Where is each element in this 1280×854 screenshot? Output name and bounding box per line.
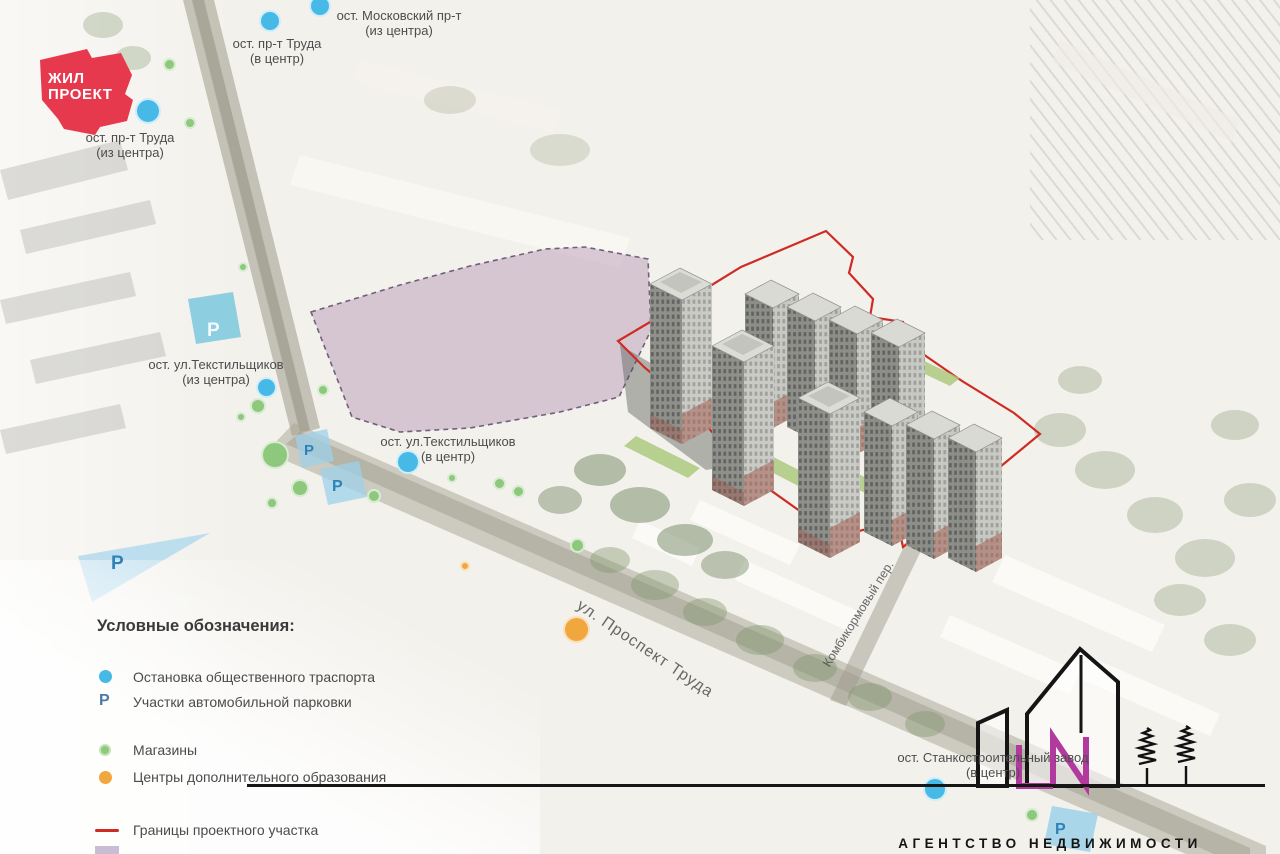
legend-parking-swatch: Р [99,692,110,710]
industrial-slabs-left [0,140,166,454]
stop-name: ост. ул.Текстильщиков [148,357,283,372]
developer-logo-line1: ЖИЛ [48,70,85,87]
stop-direction: (из центра) [96,145,164,160]
legend-item-parking: Участки автомобильной парковки [133,694,352,710]
legend-item-education: Центры дополнительного образования [133,769,386,785]
shop-marker [266,497,278,509]
stop-label: ост. пр-т Труда (в центр) [187,36,367,66]
agency-name: АГЕНТСТВО НЕДВИЖИМОСТИ [890,836,1210,851]
parking-label: Р [304,442,314,459]
legend-demolition-swatch [95,846,119,854]
stop-direction: (в центр) [421,449,475,464]
transit-stop-marker [259,10,281,32]
shop-marker [317,384,329,396]
legend-boundary-swatch [95,829,119,832]
shop-marker [238,262,248,272]
legend-title: Условные обозначения: [97,617,295,636]
parking-label: Р [207,320,220,342]
stop-label: ост. ул.Текстильщиков (из центра) [126,357,306,387]
shop-marker [261,441,289,469]
legend-transit-swatch [99,670,112,683]
stop-direction: (в центр) [250,51,304,66]
shop-marker [291,479,309,497]
parking-label: Р [111,553,124,575]
parking-label: Р [332,478,343,496]
stop-name: ост. пр-т Труда [233,36,322,51]
stop-label: ост. Московский пр-т (из центра) [309,8,489,38]
shop-marker [447,473,457,483]
legend-item-transit: Остановка общественного траспорта [133,669,375,685]
stop-direction: (в центр) [966,765,1020,780]
stop-direction: (из центра) [182,372,250,387]
stop-label: ост. Станкостроительный завод (в центр) [873,750,1113,780]
shop-marker [493,477,506,490]
shop-marker [236,412,246,422]
shop-marker [367,489,381,503]
shop-marker [570,538,585,553]
legend-item-boundary: Границы проектного участка [133,822,318,838]
developer-logo: ЖИЛ ПРОЕКТ [48,71,113,103]
agency-ground-line [247,784,1265,787]
stop-name: ост. ул.Текстильщиков [380,434,515,449]
masterplan-map: Р Р Р Р Р ост. Московский пр-т (из центр… [0,0,1280,854]
shop-marker [512,485,525,498]
shop-marker [250,398,266,414]
transit-stop-marker [135,98,161,124]
stop-name: ост. Станкостроительный завод [897,750,1088,765]
transit-stop-marker [923,777,947,801]
legend-item-shops: Магазины [133,742,197,758]
developer-logo-line2: ПРОЕКТ [48,86,113,103]
shop-marker [1025,808,1039,822]
shop-marker [163,58,176,71]
tree-icon [1138,728,1156,786]
residential-towers [650,268,1002,572]
stop-name: ост. пр-т Труда [86,130,175,145]
demolition-zone [311,247,651,432]
stop-label: ост. ул.Текстильщиков (в центр) [358,434,538,464]
tree-icon [1177,726,1195,784]
stop-name: ост. Московский пр-т [337,8,462,23]
stop-direction: (из центра) [365,23,433,38]
education-marker [460,561,470,571]
legend-education-swatch [99,771,112,784]
legend-shops-swatch [99,744,111,756]
stop-label: ост. пр-т Труда (из центра) [40,130,220,160]
shop-marker [184,117,196,129]
